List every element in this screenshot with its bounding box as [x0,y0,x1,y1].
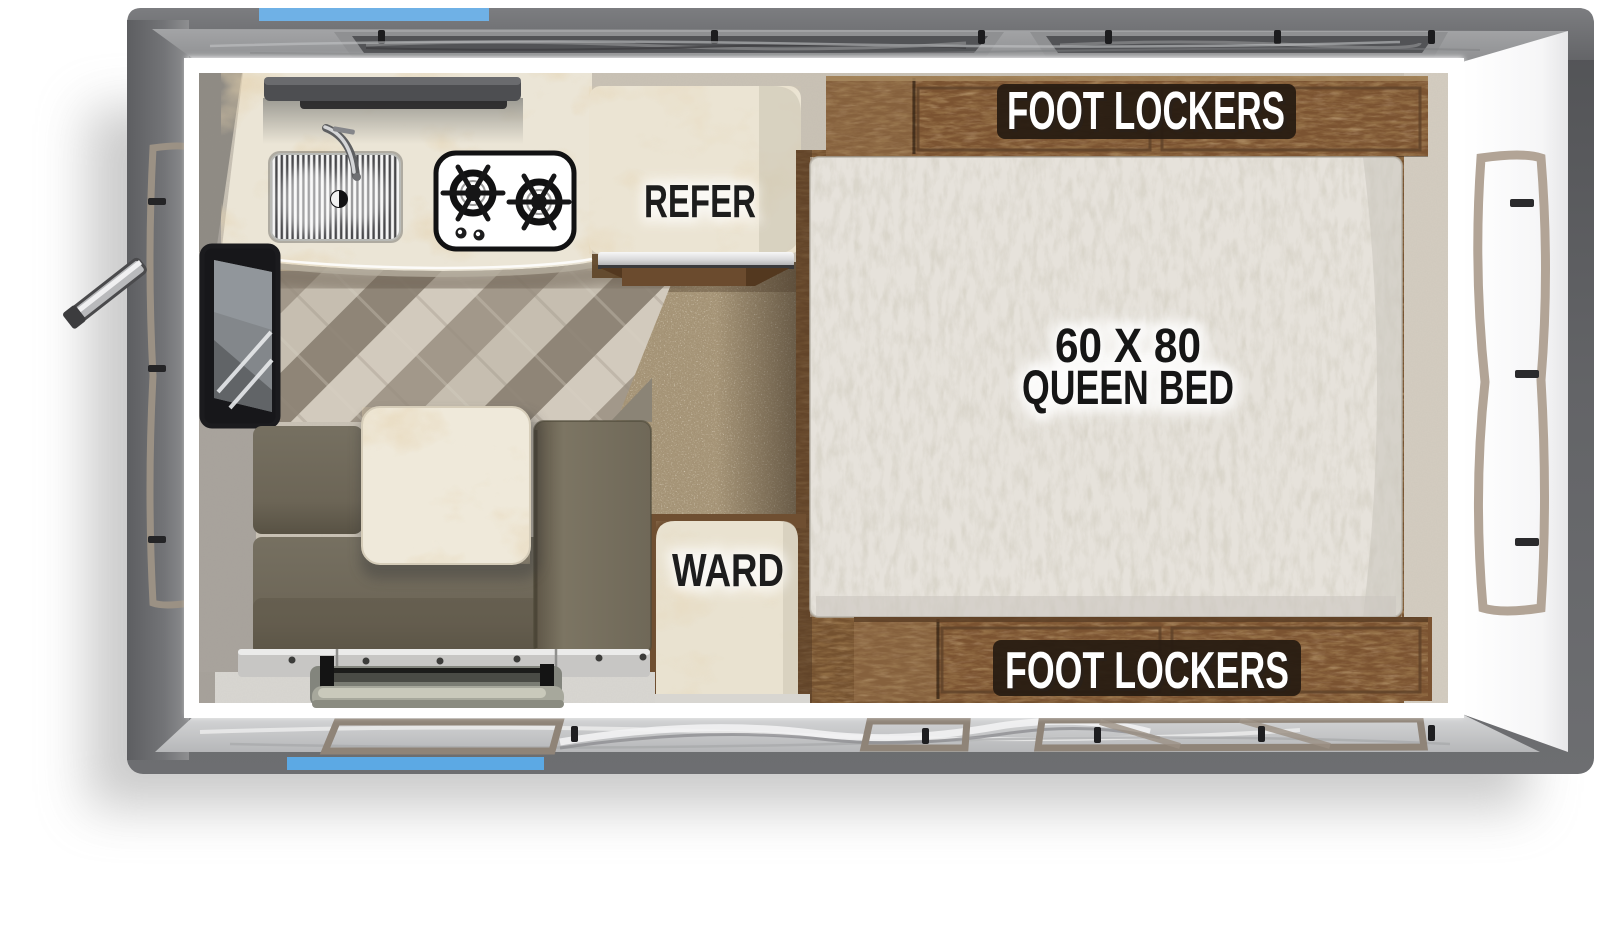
svg-text:QUEEN BED: QUEEN BED [1022,362,1234,415]
svg-text:FOOT LOCKERS: FOOT LOCKERS [1005,642,1289,700]
svg-text:FOOT LOCKERS: FOOT LOCKERS [1007,81,1285,141]
svg-text:WARD: WARD [672,544,784,596]
svg-text:REFER: REFER [644,175,756,227]
